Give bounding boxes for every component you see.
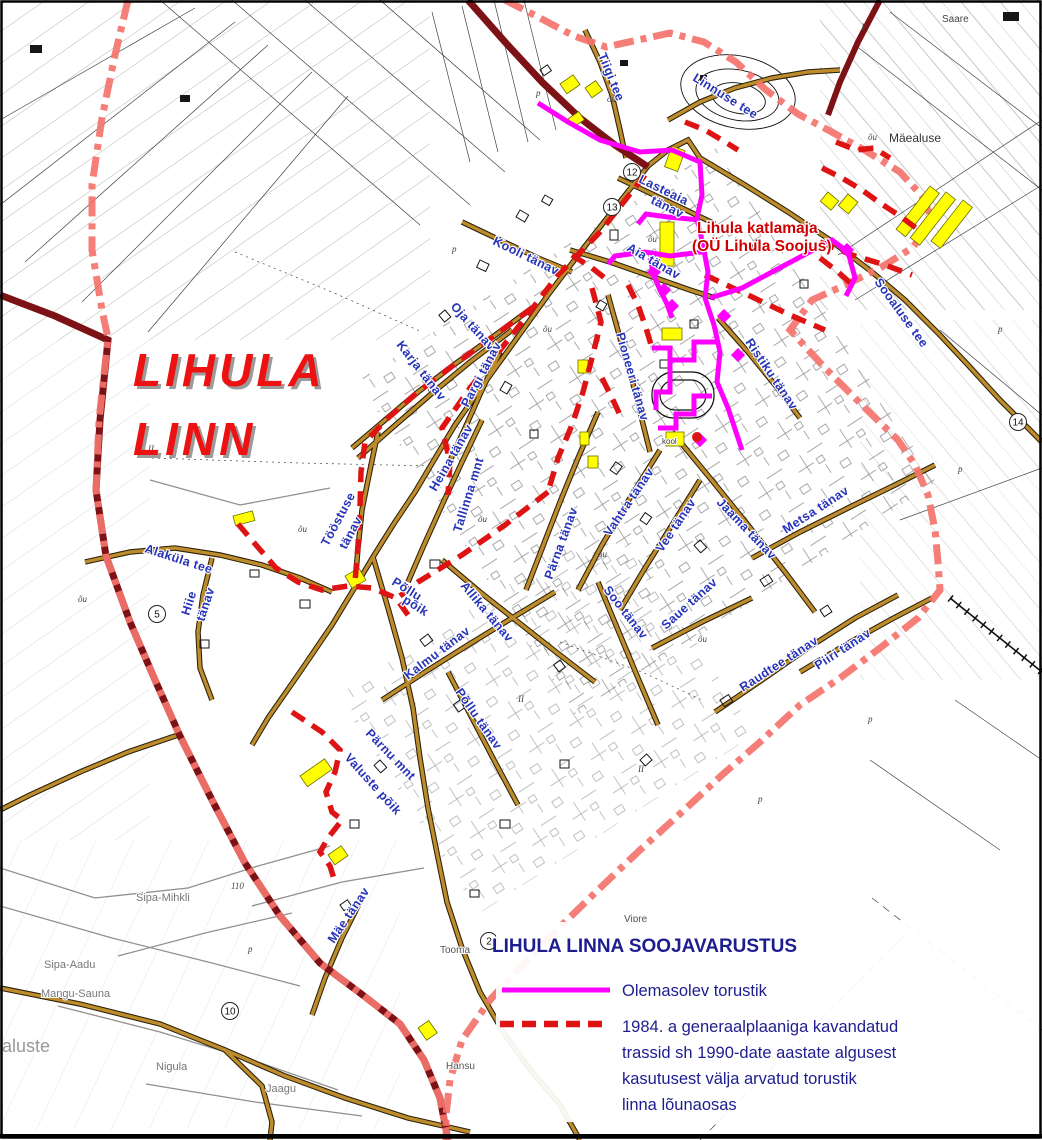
boiler-label-line2: (OÜ Lihula Soojus): [692, 238, 832, 255]
building-footprint: [620, 60, 628, 66]
lihula-heating-map: ppõuõuõuõuõuõuõuõuIIIIppppIIõup110põu 12…: [0, 0, 1042, 1140]
circled-number: 5: [154, 610, 160, 621]
circled-number: 14: [1012, 418, 1024, 429]
region-label-line1: LIHULA: [133, 344, 326, 396]
terrain-mark: p: [451, 244, 457, 254]
legend-item-planned-line3: kasutusest välja arvatud torustik: [622, 1070, 858, 1088]
terrain-mark: p: [757, 794, 763, 804]
legend-item-planned-line1: 1984. a generaalplaaniga kavandatud: [622, 1018, 898, 1036]
place-label: Mangu-Sauna: [41, 988, 111, 1000]
place-label: Hansu: [446, 1061, 475, 1072]
region-label-line2: LINN: [133, 413, 256, 465]
legend: LIHULA LINNA SOOJAVARUSTUS Olemasolev to…: [492, 922, 1040, 1122]
legend-item-existing: Olemasolev torustik: [622, 982, 768, 1000]
terrain-mark: õu: [598, 549, 608, 559]
circled-number: 13: [606, 203, 618, 214]
building-footprint: [30, 45, 42, 53]
terrain-mark: 110: [231, 881, 244, 891]
highlighted-building: [580, 432, 589, 445]
terrain-mark: õu: [868, 132, 878, 142]
place-label: Nigula: [156, 1061, 188, 1073]
map-page: ppõuõuõuõuõuõuõuõuIIIIppppIIõup110põu 12…: [0, 0, 1042, 1140]
terrain-mark: p: [535, 88, 541, 98]
terrain-mark: p: [867, 714, 873, 724]
place-label: Saare: [942, 14, 969, 25]
boiler-house-label: Lihula katlamaja (OÜ Lihula Soojus): [692, 220, 832, 255]
legend-item-planned-line4: linna lõunaosas: [622, 1096, 737, 1114]
place-label: Jaagu: [266, 1083, 296, 1095]
place-label: Sipa-Mihkli: [136, 892, 190, 904]
circled-number: 10: [224, 1007, 236, 1018]
heating-node-red: [692, 432, 702, 442]
circled-number: 12: [626, 168, 638, 179]
place-label: kool: [662, 437, 677, 446]
terrain-mark: õu: [78, 594, 88, 604]
place-label: Mäealuse: [889, 131, 941, 145]
place-label: aluste: [2, 1036, 50, 1056]
terrain-mark: õu: [648, 234, 658, 244]
terrain-mark: õu: [543, 324, 553, 334]
building-footprint: [180, 95, 190, 102]
terrain-mark: II: [517, 694, 525, 704]
place-label: Tooma: [440, 945, 470, 956]
boiler-label-line1: Lihula katlamaja: [697, 220, 818, 237]
terrain-mark: p: [247, 944, 253, 954]
terrain-mark: II: [637, 764, 645, 774]
terrain-mark: p: [957, 464, 963, 474]
legend-item-planned-line2: trassid sh 1990-date aastate algusest: [622, 1044, 897, 1062]
terrain-mark: p: [861, 20, 867, 30]
highlighted-building: [588, 456, 598, 468]
terrain-mark: õu: [478, 514, 488, 524]
building-footprint: [1003, 12, 1019, 21]
terrain-mark: õu: [698, 634, 708, 644]
terrain-mark: p: [997, 324, 1003, 334]
highlighted-building: [662, 328, 682, 340]
terrain-mark: õu: [298, 524, 308, 534]
legend-title: LIHULA LINNA SOOJAVARUSTUS: [492, 936, 797, 957]
place-label: Sipa-Aadu: [44, 959, 95, 971]
